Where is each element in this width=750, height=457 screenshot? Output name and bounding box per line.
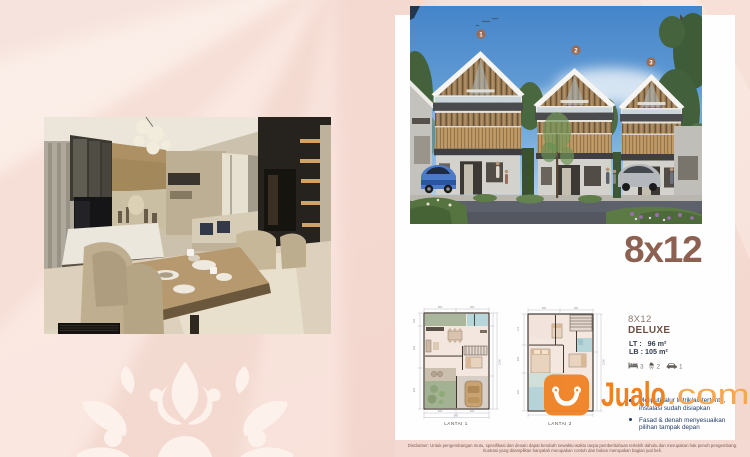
svg-text:2: 2 bbox=[574, 47, 578, 54]
svg-text:3: 3 bbox=[649, 59, 653, 66]
svg-text:3: 3 bbox=[640, 363, 644, 370]
svg-text:400: 400 bbox=[438, 409, 443, 413]
svg-text:1200: 1200 bbox=[498, 359, 502, 365]
svg-text:1200: 1200 bbox=[602, 359, 606, 365]
svg-text:800: 800 bbox=[454, 414, 459, 418]
svg-text:1: 1 bbox=[479, 31, 483, 38]
svg-text:300: 300 bbox=[574, 306, 579, 310]
svg-text:400: 400 bbox=[516, 389, 520, 394]
svg-text:400: 400 bbox=[470, 409, 475, 413]
svg-text:350: 350 bbox=[412, 387, 416, 392]
svg-text:300: 300 bbox=[470, 305, 475, 309]
svg-text:340: 340 bbox=[516, 356, 520, 361]
svg-text:500: 500 bbox=[542, 306, 547, 310]
svg-text:170: 170 bbox=[516, 326, 520, 331]
svg-text:150: 150 bbox=[412, 318, 416, 323]
svg-text:500: 500 bbox=[438, 305, 443, 309]
svg-text:1: 1 bbox=[679, 363, 683, 370]
svg-text:2: 2 bbox=[657, 363, 661, 370]
svg-text:500: 500 bbox=[412, 345, 416, 350]
